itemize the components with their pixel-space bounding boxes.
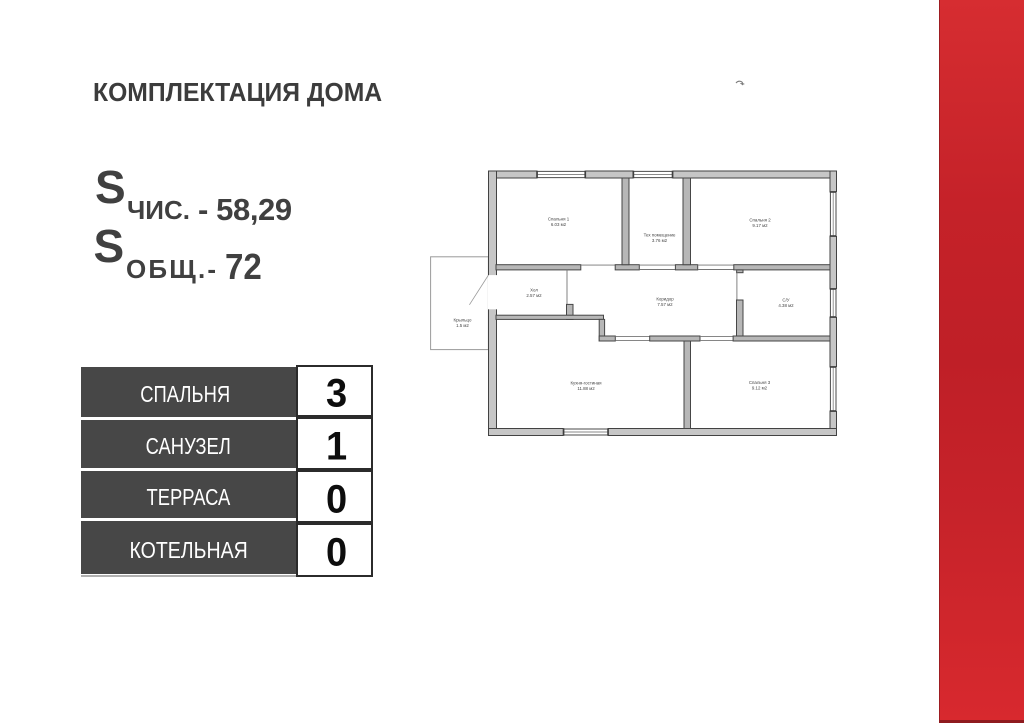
svg-text:7.57 м2: 7.57 м2 bbox=[657, 302, 673, 307]
svg-text:Спальня 2: Спальня 2 bbox=[749, 218, 771, 223]
svg-text:9.17 м2: 9.17 м2 bbox=[752, 223, 768, 228]
svg-text:9.12 м2: 9.12 м2 bbox=[752, 386, 768, 391]
svg-text:Тех помещение: Тех помещение bbox=[644, 233, 676, 238]
svg-text:Спальня 3: Спальня 3 bbox=[749, 380, 771, 385]
svg-text:Коридор: Коридор bbox=[656, 297, 674, 302]
svg-text:2.57 м2: 2.57 м2 bbox=[526, 293, 542, 298]
svg-text:1.5 м2: 1.5 м2 bbox=[456, 323, 469, 328]
svg-text:6.03 м2: 6.03 м2 bbox=[551, 222, 567, 227]
svg-text:Хол: Хол bbox=[530, 288, 538, 293]
svg-text:Кухня-гостиная: Кухня-гостиная bbox=[570, 381, 602, 386]
svg-text:4.38 м2: 4.38 м2 bbox=[778, 303, 794, 308]
svg-text:Крыльцо: Крыльцо bbox=[454, 318, 472, 323]
svg-text:11.88 м2: 11.88 м2 bbox=[577, 386, 595, 391]
svg-text:3.76 м2: 3.76 м2 bbox=[652, 238, 668, 243]
svg-text:С/У: С/У bbox=[782, 298, 789, 303]
svg-text:Спальня 1: Спальня 1 bbox=[548, 217, 570, 222]
